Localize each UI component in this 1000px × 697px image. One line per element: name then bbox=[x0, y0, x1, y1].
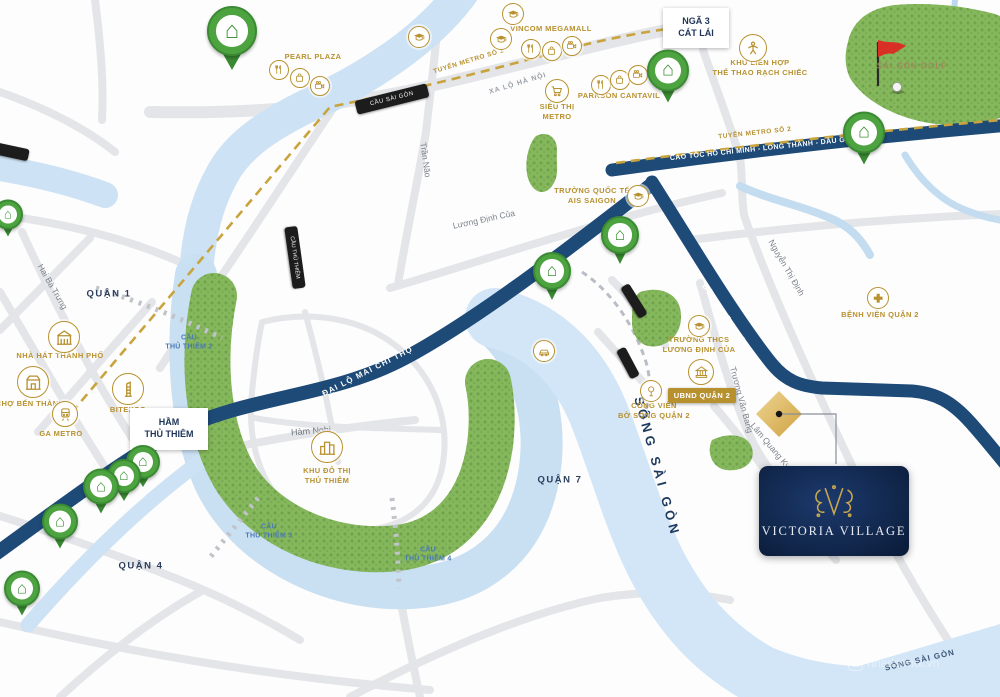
pin-house-icon: ⌂ bbox=[0, 200, 23, 230]
government-icon bbox=[688, 359, 714, 385]
shopping-icon bbox=[290, 68, 310, 88]
ham-thu-thiem-box: HẦM THỦ THIÊM bbox=[130, 408, 208, 450]
green-map-pin[interactable]: ⌂ bbox=[843, 112, 885, 165]
urban-area-icon bbox=[311, 431, 343, 463]
tunnel-label: HẦM THỦ THIÊM bbox=[145, 417, 194, 440]
metro-station-icon bbox=[52, 401, 78, 427]
cinema-icon bbox=[310, 76, 330, 96]
pin-house-icon: ⌂ bbox=[207, 6, 257, 56]
bridge-label-thu-thiem-3: CẦU THỦ THIÊM 3 bbox=[245, 523, 292, 542]
pin-house-icon: ⌂ bbox=[647, 50, 689, 92]
theater-icon bbox=[48, 321, 80, 353]
pin-house-icon: ⌂ bbox=[4, 571, 40, 607]
pin-house-icon: ⌂ bbox=[533, 252, 571, 290]
site-dot bbox=[776, 411, 782, 417]
green-map-pin[interactable]: ⌂ bbox=[207, 6, 257, 70]
pin-house-icon: ⌂ bbox=[601, 216, 639, 254]
cinema-icon bbox=[628, 65, 648, 85]
landmark-label-pearl-plaza: PEARL PLAZA bbox=[285, 52, 342, 62]
map-base-graphics bbox=[0, 0, 1000, 697]
project-name: VICTORIA VILLAGE bbox=[762, 524, 907, 539]
school-icon bbox=[688, 315, 710, 337]
ubnd-label: UBND QUẬN 2 bbox=[674, 391, 731, 400]
cinema-icon bbox=[562, 36, 582, 56]
landmark-label-ga-metro: GA METRO bbox=[39, 429, 82, 439]
landmark-label-cong-vien: CÔNG VIÊN BỜ SÔNG QUẬN 2 bbox=[618, 401, 690, 421]
landmark-label-sieu-thi-metro: SIÊU THỊ METRO bbox=[540, 102, 575, 122]
landmark-label-khu-lien-hop: KHU LIÊN HỢP THỂ THAO RẠCH CHIẾC bbox=[712, 58, 807, 78]
bridge-label-thu-thiem-4: CẦU THỦ THIÊM 4 bbox=[404, 546, 451, 565]
landmark-label-thcs: TRƯỜNG THCS LƯƠNG ĐỊNH CỦA bbox=[663, 335, 736, 355]
green-map-pin[interactable]: ⌂ bbox=[601, 216, 639, 264]
landmark-label-khu-do-thi: KHU ĐÔ THỊ THỦ THIÊM bbox=[303, 466, 351, 486]
project-logo-card: VICTORIA VILLAGE bbox=[759, 466, 909, 556]
green-map-pin[interactable]: ⌂ bbox=[533, 252, 571, 300]
school-icon bbox=[502, 3, 524, 25]
landmark-label-vincom: VINCOM MEGAMALL bbox=[510, 24, 591, 34]
district-label-q4: QUẬN 4 bbox=[119, 561, 164, 574]
dining-icon bbox=[521, 39, 541, 59]
school-icon bbox=[490, 28, 512, 50]
pin-house-icon: ⌂ bbox=[42, 504, 78, 540]
school-icon bbox=[408, 26, 430, 48]
school-icon bbox=[627, 185, 649, 207]
watermark: ⌂nhadatmoi.vn bbox=[848, 656, 939, 670]
supermarket-icon bbox=[545, 79, 569, 103]
car-tunnel-icon bbox=[533, 340, 555, 362]
house-icon: ⌂ bbox=[848, 655, 863, 671]
bridge-label: CẦU THỦ THIÊM bbox=[289, 236, 301, 279]
pin-house-icon: ⌂ bbox=[843, 112, 885, 154]
pin-house-icon: ⌂ bbox=[83, 469, 119, 505]
landmark-label-ais: TRƯỜNG QUỐC TẾ AIS SAIGON bbox=[554, 186, 630, 206]
park-icon bbox=[640, 380, 662, 402]
landmark-label-benh-vien: BỆNH VIỆN QUẬN 2 bbox=[841, 310, 919, 320]
shopping-icon bbox=[610, 70, 630, 90]
green-map-pin[interactable]: ⌂ bbox=[0, 200, 23, 237]
green-map-pin[interactable]: ⌂ bbox=[647, 50, 689, 103]
green-map-pin[interactable]: ⌂ bbox=[42, 504, 78, 549]
market-icon bbox=[17, 366, 49, 398]
ubnd-quan-2-box: UBND QUẬN 2 bbox=[668, 388, 736, 403]
location-map: CẦU SÀI GÒN CẦU THỦ THIÊM NGÃ 3 CÁT LÁI … bbox=[0, 0, 1000, 697]
dining-icon bbox=[269, 60, 289, 80]
dining-icon bbox=[591, 75, 611, 95]
rivers bbox=[0, 0, 1000, 697]
nga-3-cat-lai-box: NGÃ 3 CÁT LÁI bbox=[663, 8, 729, 48]
green-map-pin[interactable]: ⌂ bbox=[4, 571, 40, 616]
shopping-icon bbox=[542, 41, 562, 61]
sports-complex-icon bbox=[739, 34, 767, 62]
green-map-pin[interactable]: ⌂ bbox=[83, 469, 119, 514]
tower-icon bbox=[112, 373, 144, 405]
watermark-text: nhadatmoi.vn bbox=[867, 656, 939, 670]
victoria-monogram-icon bbox=[810, 484, 858, 520]
hospital-icon bbox=[867, 287, 889, 309]
landmark-label-saigon-golf: SÀI GÒN GOLF bbox=[877, 62, 947, 73]
district-label-q1: QUẬN 1 bbox=[87, 289, 132, 302]
district-label-q7: QUẬN 7 bbox=[538, 475, 583, 488]
bridge-label-thu-thiem-2: CẦU THỦ THIÊM 2 bbox=[165, 334, 212, 353]
junction-label: NGÃ 3 CÁT LÁI bbox=[678, 16, 714, 39]
